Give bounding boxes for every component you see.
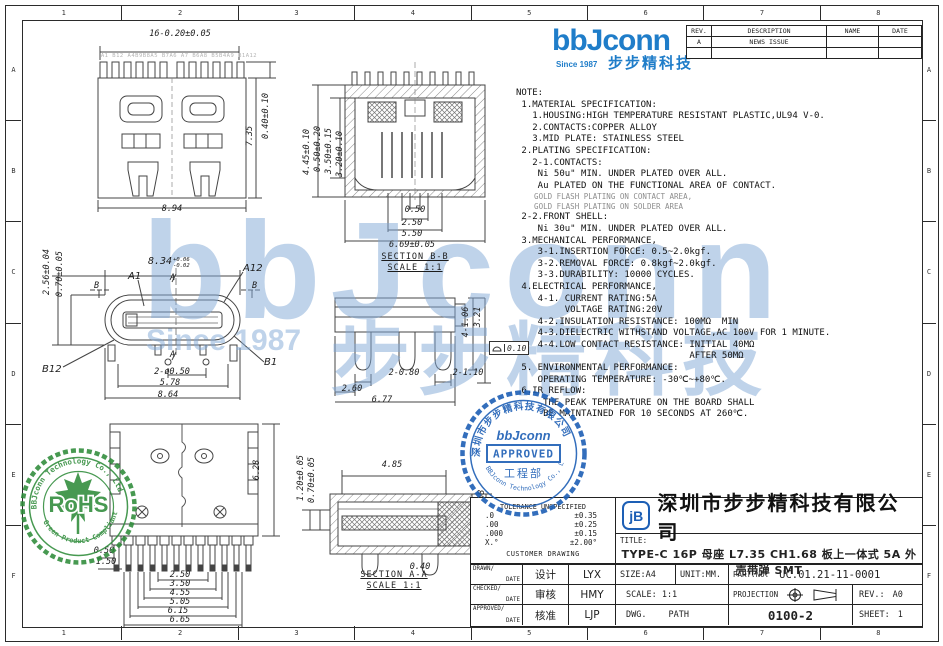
dim-label: 0.70±0.05 [307, 452, 317, 508]
dim-label: 3.50±0.15 [324, 123, 334, 179]
section-bb-label: SECTION B-B [373, 252, 457, 262]
dim-label: 8.34+0.06-0.02 [148, 257, 190, 269]
pin-callout-b1: B1 [264, 357, 277, 368]
dim-label: 2.56±0.04 [42, 244, 52, 300]
dim-label: 0.50 [395, 205, 435, 215]
part-no-label: PART.NO: [733, 570, 769, 579]
zone-label: E [922, 425, 936, 526]
dim-label: 3.20±0.10 [335, 126, 345, 182]
tolerance-value: 0.10 [505, 344, 528, 353]
date-col-header: DATE [879, 26, 921, 36]
date-label: DATE [506, 618, 520, 624]
approved-stamp: 深圳市步步精科技有限公司 BBJconn Technology Co., Ltd… [456, 386, 591, 521]
zone-label: 3 [239, 6, 355, 20]
zone-label: 4 [355, 626, 471, 640]
dwg-label: DWG. [626, 610, 646, 620]
tolerance-key: X.° [485, 538, 499, 547]
zone-label: 8 [821, 6, 936, 20]
dwg-path-cell: DWG. PATH [616, 604, 729, 625]
zone-label: 8 [821, 626, 936, 640]
checked-cell: CHECKED/DATE [471, 584, 523, 604]
date-value [879, 37, 921, 47]
profile-tolerance-frame: 0.10 [489, 341, 529, 355]
name-empty [827, 48, 879, 58]
logo-since-label: Since 1987 [556, 60, 597, 69]
company-cell: jB 深圳市步步精科技有限公司 [616, 498, 922, 534]
section-cut-letter-b: B [252, 281, 257, 291]
dim-label: 4.85 [372, 460, 412, 470]
zone-label: C [922, 222, 936, 323]
revision-header-row: REV. DESCRIPTION NAME DATE [687, 26, 921, 37]
dim-label: 2-ø0.50 [146, 367, 198, 377]
drawn-label: DRAWN/ [473, 566, 494, 572]
zone-ruler-top: 1 2 3 4 5 6 7 8 [6, 6, 936, 20]
dim-label: 7.35 [245, 121, 255, 151]
section-aa-scale-label: SCALE 1:1 [358, 581, 430, 591]
zone-label: 6 [588, 6, 704, 20]
surface-profile-icon [490, 344, 505, 352]
checked-label: CHECKED/ [473, 586, 501, 592]
approved-label: APPROVED/ [473, 606, 504, 612]
dim-label: 5.78 [148, 378, 192, 388]
tolerance-key: .000 [485, 529, 503, 538]
dim-label: 2-0.80 [382, 368, 426, 378]
zone-label: 4 [355, 6, 471, 20]
pin-callout-a1: A1 [128, 271, 141, 282]
sheet-cell: SHEET: 1 [853, 604, 922, 625]
section-bb-scale-label: SCALE 1:1 [381, 263, 449, 273]
zone-label: A [922, 20, 936, 121]
dim-label: 0.50±0.20 [313, 121, 323, 177]
dim-label: 4-1.06 [461, 303, 471, 341]
title-cell: TITLE: TYPE-C 16P 母座 L7.35 CH1.68 板上一体式 … [616, 534, 922, 564]
zone-label: 5 [472, 626, 588, 640]
drawn-cell: DRAWN/DATE [471, 564, 523, 584]
drawn-cn-label: 设计 [523, 564, 569, 584]
section-aa-label: SECTION A-A [352, 570, 436, 580]
rev-label: REV.: [859, 590, 885, 600]
scale-cell: SCALE: 1:1 [616, 584, 729, 604]
dim-label: 2-1.10 [446, 368, 490, 378]
dim-label: 16-0.20±0.05 [138, 29, 222, 39]
zone-label: 7 [704, 626, 820, 640]
title-label: TITLE: [620, 536, 922, 545]
engineering-drawing-sheet: 1 2 3 4 5 6 7 8 1 2 3 4 5 6 7 8 A B C D … [0, 0, 943, 646]
zone-label: B [6, 121, 21, 222]
sheet-label: SHEET: [859, 610, 890, 620]
approved-box-text: APPROVED [493, 448, 554, 461]
zone-label: B [922, 121, 936, 222]
dim-label: 2.60 [334, 384, 370, 394]
rev-col-header: REV. [687, 26, 712, 36]
rohs-center-text: RoHS [49, 492, 109, 517]
path-label: PATH [668, 610, 688, 620]
dim-label: 6.65 [160, 615, 200, 625]
notes-block: NOTE: 1.MATERIAL SPECIFICATION: 1.HOUSIN… [516, 88, 920, 421]
pin-callout-b12: B12 [42, 364, 62, 375]
zone-label: D [922, 324, 936, 425]
zone-label: D [6, 324, 21, 425]
zone-label: 1 [6, 6, 122, 20]
rev-empty [687, 48, 712, 58]
part-no-cell: PART.NO: UC.01.21-11-0001 [729, 564, 922, 584]
date-label: DATE [506, 577, 520, 583]
zone-label: F [922, 526, 936, 626]
desc-col-header: DESCRIPTION [712, 26, 827, 36]
dim-label: 6.77 [362, 395, 402, 405]
dim-label: 6.69±0.05 [382, 240, 442, 250]
rev-value: A0 [893, 590, 903, 600]
dim-tol-lower: -0.02 [173, 263, 190, 269]
dim-label: 2.50 [392, 218, 432, 228]
date-empty [879, 48, 921, 58]
zone-label: A [6, 20, 21, 121]
projection-cell: PROJECTION [729, 584, 853, 604]
dim-label: 0.70±0.05 [55, 246, 65, 302]
section-cut-letter-a: A [170, 350, 175, 360]
zone-label: 6 [588, 626, 704, 640]
section-cut-letter-b: B [94, 281, 99, 291]
checked-cn-label: 审核 [523, 584, 569, 604]
pin-callout-a12: A12 [243, 263, 263, 274]
approved-cn-label: 核准 [523, 604, 569, 625]
rohs-stamp: BBJconn Technology Co., Ltd Green Produc… [16, 444, 141, 569]
note-gold-line: GOLD FLASH PLATING ON SOLDER AREA [516, 202, 920, 212]
part-no-value: UC.01.21-11-0001 [779, 569, 880, 581]
dim-label: 8.94 [150, 204, 194, 214]
zone-ruler-right: A B C D E F [922, 20, 936, 626]
approved-logo-text: bbJconn [496, 428, 550, 443]
dim-label: 5.50 [390, 229, 434, 239]
approved-cell: APPROVED/DATE [471, 604, 523, 625]
desc-value: NEWS ISSUE [712, 37, 827, 47]
zone-label: C [6, 222, 21, 323]
dim-label: 6.28 [252, 456, 262, 484]
tolerance-key: .00 [485, 520, 499, 529]
name-col-header: NAME [827, 26, 879, 36]
projection-label: PROJECTION [733, 590, 778, 599]
customer-drawing-label: CUSTOMER DRAWING [471, 550, 615, 558]
dim-label: 4.45±0.10 [302, 124, 312, 180]
dim-label: 8.64 [140, 390, 196, 400]
checked-name: HMY [569, 584, 616, 604]
third-angle-projection-icon [786, 588, 844, 602]
drawing-number-cell: 0100-2 [729, 604, 853, 625]
tolerance-value: ±0.25 [574, 520, 597, 529]
jb-logo: jB [622, 501, 650, 530]
approved-dept-text: 工程部 [504, 466, 543, 480]
size-cell: SIZE:A4 [616, 564, 676, 584]
dim-label: 1.20±0.05 [296, 450, 306, 506]
rev-cell: REV.: A0 [853, 584, 922, 604]
zone-label: 2 [122, 6, 238, 20]
zone-label: 5 [472, 6, 588, 20]
revision-table: REV. DESCRIPTION NAME DATE A NEWS ISSUE [686, 25, 922, 59]
unit-cell: UNIT:MM. [676, 564, 729, 584]
logo-cn-label: 步步精科技 [608, 52, 693, 73]
tolerance-value: ±2.00° [570, 538, 597, 547]
note-text: NOTE: 1.MATERIAL SPECIFICATION: 1.HOUSIN… [516, 88, 920, 192]
name-value [827, 37, 879, 47]
revision-row: A NEWS ISSUE [687, 37, 921, 48]
dim-label: 3.21 [473, 304, 483, 330]
section-cut-letter-a: A [170, 273, 175, 283]
note-gold-line: GOLD FLASH PLATING ON CONTACT AREA, [516, 192, 920, 202]
sheet-value: 1 [898, 610, 903, 620]
desc-empty [712, 48, 827, 58]
pin-map-label: A1 B12 A4B9B8A5 B7A6 A7 B6A8 B5B4A9 B1A1… [90, 53, 268, 59]
tolerance-value: ±0.15 [574, 529, 597, 538]
revision-row-empty [687, 48, 921, 58]
zone-label: 7 [704, 6, 820, 20]
approved-name: LJP [569, 604, 616, 625]
date-label: DATE [506, 597, 520, 603]
dim-value: 8.34 [148, 256, 172, 267]
dim-label: 0.40±0.10 [261, 88, 271, 144]
rev-value: A [687, 37, 712, 47]
drawn-name: LYX [569, 564, 616, 584]
